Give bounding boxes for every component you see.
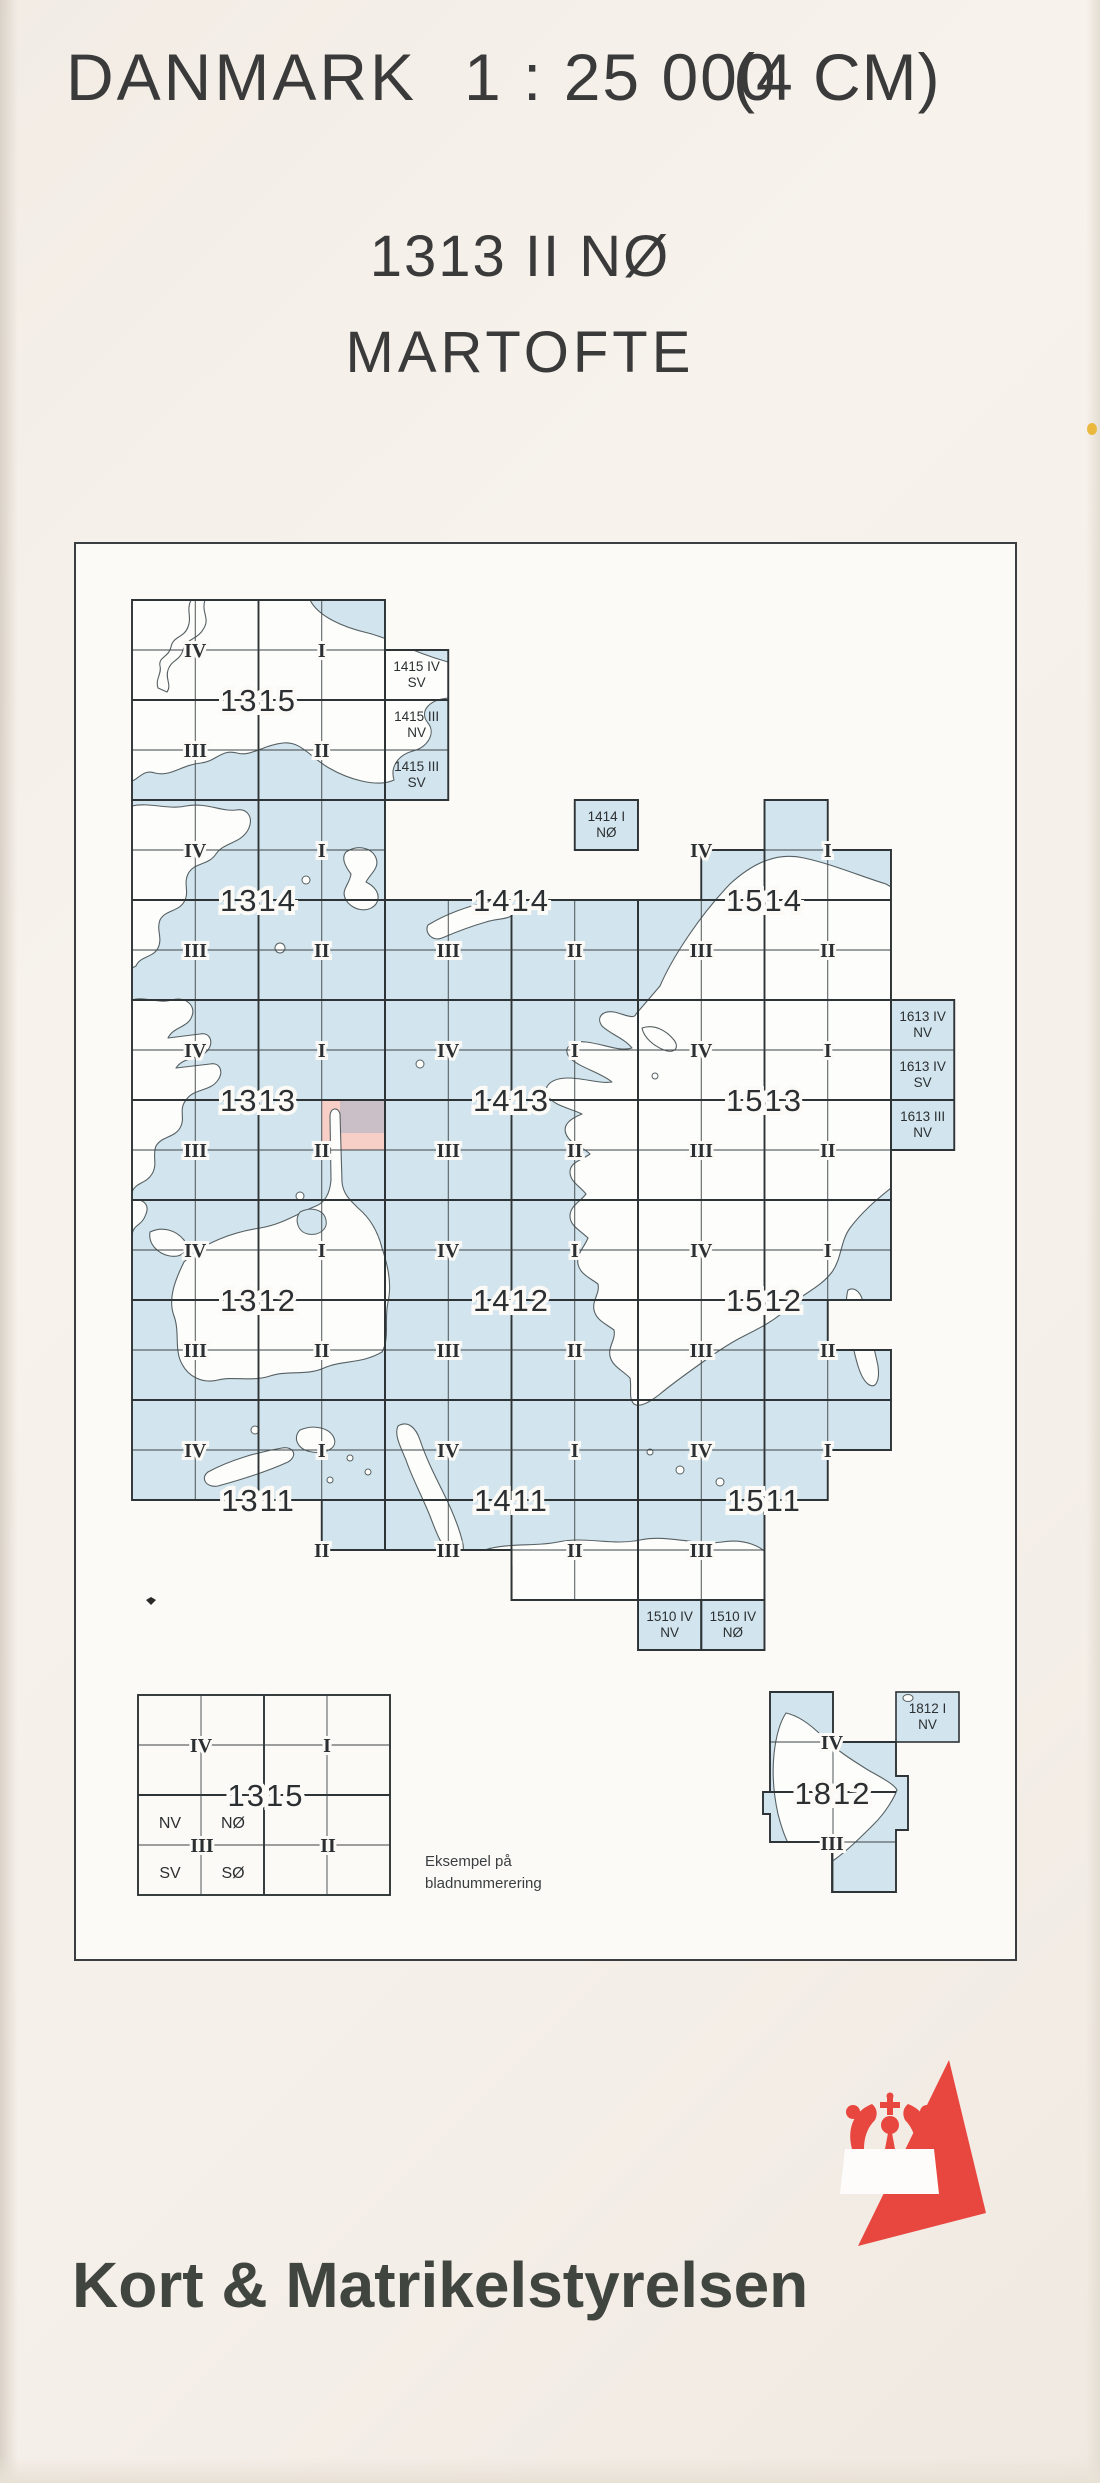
block-number-label: 1314 [220,883,297,918]
quadrant-numeral: II [820,940,836,962]
quadrant-numeral: I [824,1240,832,1262]
quadrant-numeral: III [437,1340,461,1362]
quadrant-numeral: III [690,1340,714,1362]
small-island [275,943,285,953]
small-island [416,1060,424,1068]
small-island [347,1455,353,1461]
sea-cell [765,800,828,850]
inset-quadrant-numeral: IV [821,1732,844,1754]
example-quadrant-numeral: II [320,1835,336,1857]
block-number-label: 1512 [726,1283,803,1318]
block-number-label: 1411 [474,1483,549,1518]
block-number-label: 1412 [473,1283,550,1318]
block-number-label: 1413 [473,1083,550,1118]
quadrant-numeral: I [318,1240,326,1262]
quadrant-numeral: I [318,640,326,662]
quadrant-numeral: I [824,840,832,862]
quadrant-numeral: III [690,940,714,962]
quadrant-numeral: IV [690,840,713,862]
quadrant-numeral: IV [184,1240,207,1262]
quadrant-numeral: II [567,1540,583,1562]
quadrant-numeral: II [314,1540,330,1562]
quadrant-numeral: II [314,940,330,962]
example-subquadrant-label: SØ [221,1865,244,1882]
block-number-label: 1414 [473,883,550,918]
quadrant-numeral: II [314,1140,330,1162]
quadrant-numeral: I [571,1240,579,1262]
quadrant-numeral: III [184,740,208,762]
small-island [302,876,310,884]
inset-quadrant-numeral: III [820,1833,844,1855]
example-block-number: 1315 [228,1778,305,1813]
example-quadrant-numeral: IV [190,1735,213,1757]
quadrant-numeral: III [437,1540,461,1562]
quadrant-numeral: III [690,1140,714,1162]
quadrant-numeral: II [820,1340,836,1362]
quadrant-numeral: III [690,1540,714,1562]
small-island [365,1469,371,1475]
map-cover-page: { "page": { "country": "DANMARK", "scale… [0,0,1100,2483]
sea-cell [322,1500,385,1550]
quadrant-numeral: I [824,1440,832,1462]
quadrant-numeral: III [184,940,208,962]
coastline-landmass [470,1538,765,1600]
publisher-name: Kort & Matrikelstyrelsen [72,2248,808,2322]
quadrant-numeral: IV [690,1240,713,1262]
example-subquadrant-label: SV [159,1865,181,1882]
quadrant-numeral: IV [184,840,207,862]
quadrant-numeral: IV [184,1440,207,1462]
quadrant-numeral: IV [690,1040,713,1062]
block-number-label: 1311 [221,1483,296,1518]
example-subquadrant-label: NØ [221,1815,245,1832]
block-number-label: 1313 [220,1083,297,1118]
quadrant-numeral: IV [437,1440,460,1462]
block-number-label: 1511 [727,1483,802,1518]
inset-sea [763,1792,770,1814]
quadrant-numeral: IV [184,640,207,662]
block-number-label: 1315 [220,683,297,718]
small-island [652,1073,658,1079]
quadrant-numeral: II [567,940,583,962]
highlight-gray-tint [340,1100,385,1133]
crown-icon [840,2093,939,2195]
quadrant-numeral: III [437,940,461,962]
coastline-landmass [296,1427,334,1452]
kms-logo [840,2056,1000,2256]
quadrant-numeral: II [567,1340,583,1362]
quadrant-numeral: III [184,1340,208,1362]
quadrant-numeral: I [571,1440,579,1462]
quadrant-numeral: II [314,740,330,762]
example-quadrant-numeral: I [323,1735,331,1757]
small-island [296,1192,304,1200]
quadrant-numeral: I [318,840,326,862]
quadrant-numeral: III [184,1140,208,1162]
block-number-label: 1514 [726,883,803,918]
inset-block-number: 1812 [795,1776,872,1811]
block-number-label: 1513 [726,1083,803,1118]
quadrant-numeral: I [318,1440,326,1462]
quadrant-numeral: IV [437,1040,460,1062]
small-island [676,1466,684,1474]
example-subquadrant-label: NV [159,1815,182,1832]
quadrant-numeral: I [571,1040,579,1062]
small-island [327,1477,333,1483]
quadrant-numeral: III [437,1140,461,1162]
example-quadrant-numeral: III [190,1835,214,1857]
small-island [716,1478,724,1486]
quadrant-numeral: IV [690,1440,713,1462]
quadrant-numeral: IV [437,1240,460,1262]
quadrant-numeral: II [567,1140,583,1162]
inset-sea [896,1776,908,1830]
quadrant-numeral: I [318,1040,326,1062]
quadrant-numeral: II [820,1140,836,1162]
quadrant-numeral: II [314,1340,330,1362]
block-number-label: 1312 [220,1283,297,1318]
quadrant-numeral: IV [184,1040,207,1062]
quadrant-numeral: I [824,1040,832,1062]
